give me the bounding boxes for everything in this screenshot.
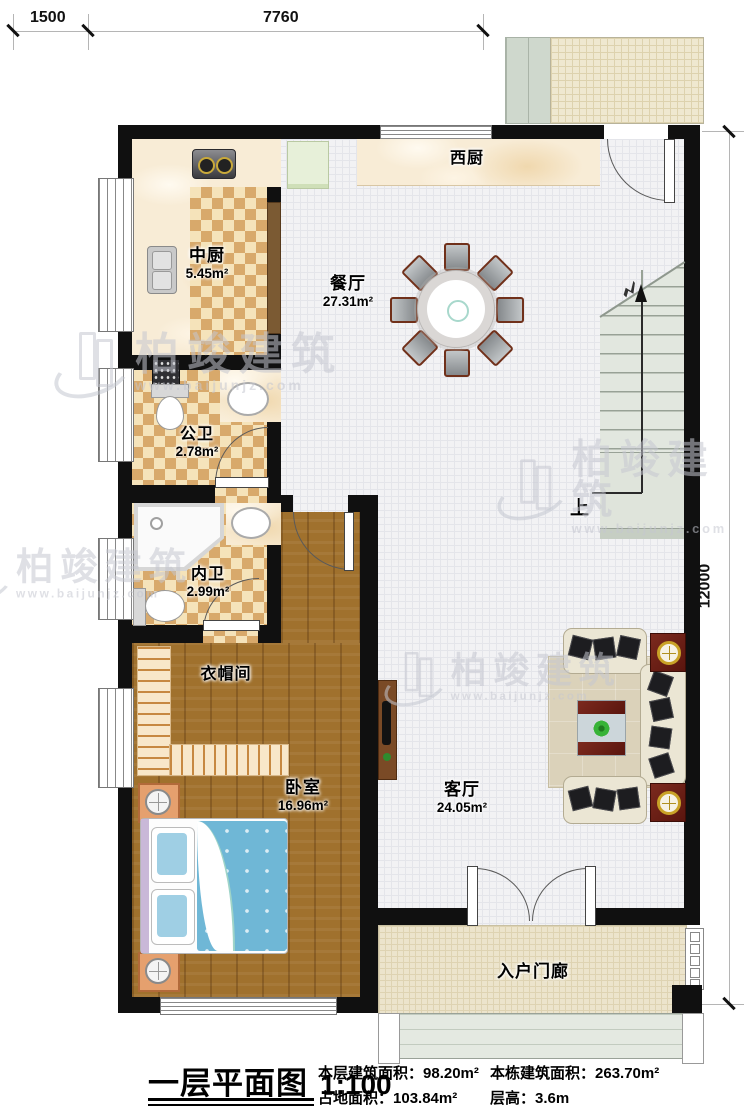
column-pane: [690, 956, 700, 966]
nightstand: [138, 783, 180, 823]
bath-sink: [227, 382, 269, 416]
table-lamp: [145, 958, 171, 984]
porch-column-window: [685, 928, 704, 990]
pillow: [151, 827, 195, 883]
column-pane: [690, 944, 700, 954]
room-name: 餐厅: [323, 274, 373, 294]
porch-side-pillar: [682, 1013, 704, 1064]
window-bedroom-south: [160, 997, 337, 1015]
wardrobe-west: [137, 646, 171, 776]
sofa-cushion: [593, 637, 617, 661]
public-bath-door-leaf: [215, 477, 269, 488]
entry-door-leaf-right: [585, 866, 596, 926]
wardrobe-south: [169, 744, 289, 776]
stair-guide-line: [592, 492, 642, 494]
kitchen-sink: [147, 246, 177, 294]
room-name: 卧室: [278, 778, 328, 798]
window-publicbath-west: [98, 368, 134, 462]
sofa-top: [563, 628, 647, 674]
stat-floor-height: 层高：3.6m: [490, 1087, 569, 1108]
wall-bedroom-east: [360, 495, 378, 1013]
sofa-bottom: [563, 776, 647, 824]
up-label: 上: [570, 498, 590, 520]
room-label-living: 客厅 24.05m²: [437, 780, 487, 815]
wall-porch-corner: [672, 985, 702, 1013]
dimension-value-7760: 7760: [263, 9, 299, 27]
toilet-bowl: [156, 396, 184, 430]
window-cloakroom-west: [98, 688, 134, 788]
burner: [198, 157, 215, 174]
room-name: 客厅: [437, 780, 487, 800]
stair-guide-line: [641, 300, 643, 493]
bed: [140, 818, 288, 954]
room-name: 公卫: [176, 426, 219, 444]
wall-bath-cloakroom: [118, 625, 203, 643]
title-underline-2: [148, 1104, 314, 1106]
sink-basin: [152, 251, 172, 270]
room-label-dining: 餐厅 27.31m²: [323, 274, 373, 309]
dining-chair: [444, 243, 470, 271]
plant: [383, 753, 391, 761]
entry-door-leaf-left: [467, 866, 478, 926]
dining-chair: [444, 349, 470, 377]
gold-lamp: [657, 641, 681, 665]
sofa-right: [640, 664, 686, 786]
room-label-cloakroom: 衣帽间: [200, 666, 251, 684]
room-label-inner-bath: 内卫 2.99m²: [187, 566, 230, 600]
room-label-west-kitchen: 西厨: [450, 150, 484, 168]
room-name: 入户门廊: [497, 962, 569, 982]
room-name: 西厨: [450, 150, 484, 168]
stat-value: 3.6m: [535, 1090, 569, 1107]
stat-label: 占地面积：: [318, 1090, 393, 1107]
wall-south-living-right: [588, 908, 700, 925]
dining-table: [417, 270, 495, 348]
room-name: 衣帽间: [200, 666, 251, 684]
wall-bedroom-south: [118, 997, 160, 1013]
stat-value: 103.84m²: [393, 1090, 457, 1107]
room-name: 中厨: [186, 246, 229, 266]
room-area: 2.78m²: [176, 444, 219, 460]
sofa-cushion: [649, 726, 673, 750]
stat-label: 层高：: [490, 1090, 535, 1107]
sofa-cushion: [649, 697, 674, 722]
window-innerbath-west: [98, 538, 134, 620]
stat-label: 本层建筑面积：: [318, 1065, 423, 1082]
table-lamp: [145, 789, 171, 815]
stat-footprint-area: 占地面积：103.84m²: [318, 1087, 457, 1108]
logo-bar: [79, 332, 96, 380]
toilet-bowl: [145, 590, 185, 622]
sofa-cushion: [616, 635, 641, 660]
wall-bath-divider: [118, 485, 215, 503]
terrace: [550, 37, 704, 124]
terrace-door-leaf: [664, 139, 675, 203]
pillow-inner: [157, 895, 187, 937]
wall-kitchen-bath: [118, 355, 281, 370]
sofa-cushion: [617, 787, 641, 811]
stat-floor-area: 本层建筑面积：98.20m²: [318, 1062, 479, 1083]
sofa-cushion: [568, 786, 593, 811]
stat-building-area: 本栋建筑面积：263.70m²: [490, 1062, 659, 1083]
terrace-steps: [505, 37, 552, 124]
tv: [382, 701, 391, 745]
stat-value: 263.70m²: [595, 1065, 659, 1082]
stat-value: 98.20m²: [423, 1065, 479, 1082]
wall-bedroom-north: [281, 495, 293, 512]
dimension-extension: [702, 131, 744, 132]
refrigerator: [287, 141, 329, 189]
floor-plan-canvas: 1500 7760 12000: [0, 0, 750, 1117]
dining-chair: [496, 297, 524, 323]
stair-base: [600, 528, 684, 539]
dimension-value-1500: 1500: [30, 9, 66, 27]
bed-headboard: [141, 819, 149, 953]
lazy-susan: [447, 300, 469, 322]
wall-south-living-left: [372, 908, 470, 925]
stair-direction-label: 上: [570, 498, 590, 520]
coffee-table: [577, 700, 626, 756]
coffee-table-edge: [578, 742, 625, 755]
entry-steps: [398, 1013, 684, 1059]
dimension-extension: [702, 1004, 744, 1005]
inner-bath-door-leaf: [203, 620, 260, 631]
watermark-logo: [0, 548, 8, 601]
room-label-porch: 入户门廊: [497, 962, 569, 982]
room-area: 24.05m²: [437, 800, 487, 816]
side-table: [650, 633, 686, 672]
room-label-chinese-kitchen: 中厨 5.45m²: [186, 246, 229, 281]
sofa-cushion: [647, 670, 674, 697]
plan-title: 一层平面图: [148, 1058, 308, 1103]
dining-chair: [390, 297, 418, 323]
room-area: 2.99m²: [187, 584, 230, 600]
wall-bedroom-south: [335, 997, 378, 1013]
sink-basin: [152, 271, 172, 290]
bath-sink: [231, 507, 271, 539]
sofa-cushion: [648, 752, 674, 778]
room-name: 内卫: [187, 566, 230, 584]
pillow: [151, 889, 195, 945]
stair-up-arrow: [635, 284, 647, 302]
burner: [216, 157, 233, 174]
room-area: 27.31m²: [323, 294, 373, 310]
room-label-bedroom: 卧室 16.96m²: [278, 778, 328, 813]
stove: [192, 149, 236, 179]
title-underline: [148, 1098, 314, 1101]
window-kitchen-west: [98, 178, 134, 332]
dimension-line-top: [13, 31, 483, 32]
coffee-table-edge: [578, 701, 625, 714]
room-area: 5.45m²: [186, 266, 229, 282]
gold-lamp: [657, 791, 681, 815]
table-plant: [593, 720, 610, 737]
side-table: [650, 783, 686, 822]
sofa-cushion: [592, 787, 616, 811]
pillow-inner: [157, 833, 187, 875]
nightstand: [138, 952, 180, 992]
room-label-public-bath: 公卫 2.78m²: [176, 426, 219, 460]
room-area: 16.96m²: [278, 798, 328, 814]
wall-east: [684, 125, 700, 925]
wall-bath-cloakroom: [258, 625, 281, 643]
column-pane: [690, 932, 700, 942]
wall-north: [118, 125, 604, 139]
porch-side-pillar: [378, 1013, 400, 1064]
stat-label: 本栋建筑面积：: [490, 1065, 595, 1082]
column-pane: [690, 968, 700, 978]
dimension-line-right: [729, 131, 730, 1004]
bedroom-door-leaf: [344, 512, 354, 571]
shower-drain: [150, 517, 163, 530]
wall-bedroom-north: [348, 495, 360, 512]
logo-swoosh: [0, 557, 16, 611]
tv-cabinet: [378, 680, 397, 780]
sofa-cushion: [568, 635, 593, 660]
kitchen-door-leaf: [267, 202, 281, 334]
